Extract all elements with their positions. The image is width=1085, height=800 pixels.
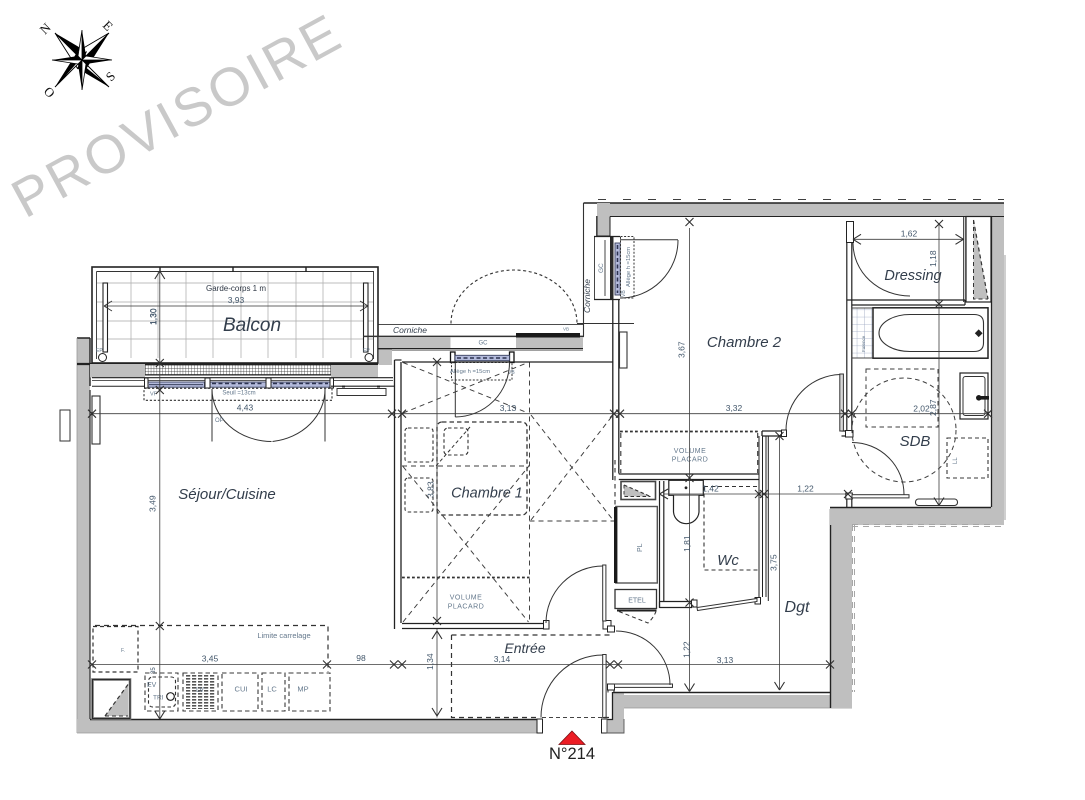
svg-text:EP: EP <box>363 348 370 354</box>
svg-text:Corniche: Corniche <box>582 279 592 313</box>
svg-text:3,45: 3,45 <box>202 654 219 664</box>
svg-text:1,81: 1,81 <box>682 535 692 552</box>
svg-text:3,67: 3,67 <box>677 341 687 358</box>
svg-text:Dressing: Dressing <box>884 268 941 284</box>
svg-text:1,42: 1,42 <box>702 484 719 494</box>
svg-text:MP: MP <box>297 685 308 694</box>
svg-text:Balcon: Balcon <box>223 315 281 336</box>
svg-text:3,93: 3,93 <box>228 295 245 305</box>
svg-text:Allège h =15cm: Allège h =15cm <box>450 369 490 375</box>
svg-text:F.: F. <box>121 648 125 654</box>
svg-text:VB: VB <box>621 290 627 297</box>
svg-text:1,62: 1,62 <box>901 229 918 239</box>
svg-text:3,13: 3,13 <box>500 403 517 413</box>
svg-text:1,18: 1,18 <box>928 250 938 267</box>
svg-text:LC: LC <box>267 685 277 694</box>
svg-text:3,13: 3,13 <box>717 655 734 665</box>
svg-text:Corniche: Corniche <box>393 325 427 335</box>
svg-text:Limite carrelage: Limite carrelage <box>257 631 310 640</box>
svg-text:GC: GC <box>598 263 605 273</box>
svg-text:TRI: TRI <box>153 695 164 702</box>
svg-text:1,22: 1,22 <box>797 484 814 494</box>
svg-text:LL: LL <box>953 457 959 464</box>
svg-text:Garde-corps 1 m: Garde-corps 1 m <box>206 284 266 293</box>
svg-text:PLACARD: PLACARD <box>672 457 709 464</box>
svg-text:1,30: 1,30 <box>149 308 159 325</box>
svg-text:Dgt: Dgt <box>785 599 810 616</box>
svg-text:EV: EV <box>147 682 157 689</box>
svg-text:VOLUME: VOLUME <box>674 448 707 455</box>
svg-text:Faïence: Faïence <box>861 335 866 352</box>
svg-text:Entrée: Entrée <box>504 640 545 656</box>
svg-text:PL: PL <box>637 543 644 552</box>
svg-text:Wc: Wc <box>717 552 739 569</box>
svg-text:Chambre 2: Chambre 2 <box>707 334 782 351</box>
svg-text:CUI: CUI <box>235 685 248 694</box>
svg-text:SDB: SDB <box>900 433 931 450</box>
svg-text:N°214: N°214 <box>549 745 595 763</box>
svg-text:Chambre 1: Chambre 1 <box>451 486 523 502</box>
svg-text:1,34: 1,34 <box>425 653 435 670</box>
svg-text:35: 35 <box>151 667 157 674</box>
svg-text:3,32: 3,32 <box>726 403 743 413</box>
svg-text:Seuil =13cm: Seuil =13cm <box>222 391 255 397</box>
svg-text:PLACARD: PLACARD <box>448 604 485 611</box>
svg-text:3,83: 3,83 <box>426 481 436 498</box>
svg-text:EP: EP <box>96 348 103 354</box>
svg-text:Allège h =15cm: Allège h =15cm <box>626 247 632 287</box>
svg-text:ETEL: ETEL <box>628 598 646 605</box>
svg-text:GC: GC <box>479 341 489 347</box>
svg-text:LV: LV <box>196 687 204 694</box>
svg-text:VOLUME: VOLUME <box>450 595 483 602</box>
svg-text:OP: OP <box>215 418 224 424</box>
svg-text:2,87: 2,87 <box>928 399 938 416</box>
svg-text:3,75: 3,75 <box>769 554 779 571</box>
svg-text:1,22: 1,22 <box>682 641 692 658</box>
svg-text:VF: VF <box>150 392 158 398</box>
svg-text:3,14: 3,14 <box>494 654 511 664</box>
svg-text:VB: VB <box>563 327 569 332</box>
svg-text:98: 98 <box>356 653 366 663</box>
svg-text:3,49: 3,49 <box>148 495 158 512</box>
svg-text:4,43: 4,43 <box>237 403 254 413</box>
svg-text:Séjour/Cuisine: Séjour/Cuisine <box>178 486 276 503</box>
